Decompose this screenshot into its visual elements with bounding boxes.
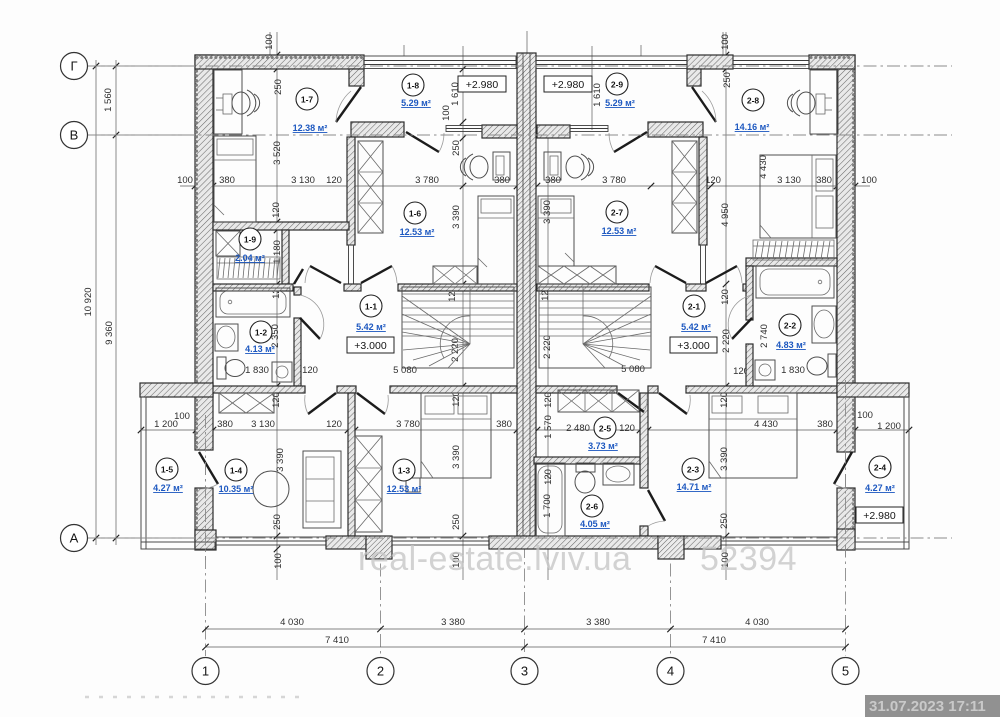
svg-text:5 080: 5 080	[621, 364, 645, 375]
svg-text:1-9: 1-9	[244, 235, 257, 245]
svg-text:3 520: 3 520	[272, 141, 283, 165]
svg-text:3 780: 3 780	[415, 175, 439, 186]
svg-text:2-2: 2-2	[784, 321, 797, 331]
svg-text:12.53 м²: 12.53 м²	[400, 227, 435, 237]
svg-text:7 410: 7 410	[702, 635, 726, 646]
svg-text:3 390: 3 390	[451, 445, 462, 469]
svg-text:250: 250	[451, 514, 462, 530]
svg-text:100: 100	[264, 34, 275, 50]
svg-text:1-5: 1-5	[161, 465, 174, 475]
svg-text:120: 120	[326, 175, 342, 186]
svg-text:5.29 м²: 5.29 м²	[605, 98, 635, 108]
svg-text:2-1: 2-1	[688, 302, 701, 312]
svg-text:В: В	[70, 128, 79, 143]
svg-text:+2.980: +2.980	[552, 79, 585, 91]
svg-text:3 390: 3 390	[719, 447, 730, 471]
svg-text:2-4: 2-4	[874, 463, 887, 473]
svg-text:380: 380	[219, 175, 235, 186]
svg-text:3 780: 3 780	[602, 175, 626, 186]
svg-text:1-6: 1-6	[409, 209, 422, 219]
svg-text:1 560: 1 560	[103, 88, 114, 112]
svg-text:12.53 м²: 12.53 м²	[602, 226, 637, 236]
svg-text:1 610: 1 610	[592, 83, 603, 107]
svg-text:9 360: 9 360	[104, 321, 115, 345]
svg-text:380: 380	[816, 175, 832, 186]
svg-text:5: 5	[842, 664, 849, 679]
svg-text:380: 380	[817, 419, 833, 430]
svg-text:5 080: 5 080	[393, 365, 417, 376]
svg-text:14.16 м²: 14.16 м²	[735, 122, 770, 132]
svg-text:3 380: 3 380	[441, 617, 465, 628]
svg-text:4 430: 4 430	[754, 419, 778, 430]
svg-text:4.13 м²: 4.13 м²	[245, 344, 275, 354]
svg-text:2 220: 2 220	[542, 335, 553, 359]
svg-text:120: 120	[720, 289, 731, 305]
svg-text:120: 120	[719, 392, 730, 408]
svg-text:14.71 м²: 14.71 м²	[677, 482, 712, 492]
svg-text:100: 100	[177, 175, 193, 186]
svg-text:3 130: 3 130	[291, 175, 315, 186]
svg-text:5.29 м²: 5.29 м²	[401, 98, 431, 108]
svg-text:1 200: 1 200	[877, 421, 901, 432]
svg-text:1-8: 1-8	[407, 81, 420, 91]
svg-text:2: 2	[377, 664, 384, 679]
svg-text:real-estate.lviv.ua: real-estate.lviv.ua	[358, 540, 631, 578]
svg-text:250: 250	[273, 79, 284, 95]
svg-text:120: 120	[543, 469, 554, 485]
svg-text:2 740: 2 740	[759, 324, 770, 348]
svg-text:А: А	[70, 531, 79, 546]
svg-text:10 920: 10 920	[83, 287, 94, 316]
svg-text:1 700: 1 700	[542, 494, 553, 518]
svg-text:2-7: 2-7	[611, 208, 624, 218]
svg-text:5.42 м²: 5.42 м²	[681, 322, 711, 332]
svg-text:52394: 52394	[700, 540, 797, 578]
svg-text:100: 100	[441, 105, 452, 121]
svg-text:1 180: 1 180	[272, 240, 283, 264]
svg-text:250: 250	[451, 140, 462, 156]
svg-text:250: 250	[722, 72, 733, 88]
svg-text:120: 120	[302, 365, 318, 376]
svg-text:1 570: 1 570	[543, 415, 554, 439]
svg-text:1-7: 1-7	[301, 95, 314, 105]
svg-text:5.42 м²: 5.42 м²	[356, 322, 386, 332]
svg-text:2 220: 2 220	[721, 329, 732, 353]
svg-text:1-1: 1-1	[365, 302, 378, 312]
svg-text:+3.000: +3.000	[677, 340, 710, 352]
svg-text:3 780: 3 780	[396, 419, 420, 430]
svg-text:380: 380	[217, 419, 233, 430]
svg-text:1 830: 1 830	[781, 365, 805, 376]
svg-text:380: 380	[496, 419, 512, 430]
svg-text:10.35 м²: 10.35 м²	[219, 484, 254, 494]
svg-text:4: 4	[667, 664, 674, 679]
svg-text:4.27 м²: 4.27 м²	[865, 483, 895, 493]
svg-text:7 410: 7 410	[325, 635, 349, 646]
svg-text:4 950: 4 950	[720, 203, 731, 227]
svg-text:120: 120	[326, 419, 342, 430]
svg-text:3.73 м²: 3.73 м²	[588, 441, 618, 451]
svg-text:3 390: 3 390	[542, 200, 553, 224]
svg-text:2-3: 2-3	[687, 465, 700, 475]
svg-text:250: 250	[272, 514, 283, 530]
svg-text:+2.980: +2.980	[466, 79, 499, 91]
svg-text:250: 250	[719, 513, 730, 529]
svg-text:2 480: 2 480	[566, 423, 590, 434]
svg-text:2.04 м²: 2.04 м²	[235, 253, 265, 263]
svg-text:+3.000: +3.000	[354, 340, 387, 352]
svg-text:100: 100	[857, 410, 873, 421]
svg-text:3: 3	[521, 664, 528, 679]
svg-text:1-2: 1-2	[255, 328, 268, 338]
svg-text:4.83 м²: 4.83 м²	[776, 340, 806, 350]
svg-text:+2.980: +2.980	[863, 510, 896, 522]
svg-text:100: 100	[720, 34, 731, 50]
svg-text:3 130: 3 130	[251, 419, 275, 430]
svg-text:4 030: 4 030	[280, 617, 304, 628]
svg-text:3 380: 3 380	[586, 617, 610, 628]
svg-text:2-8: 2-8	[747, 96, 760, 106]
svg-text:1 830: 1 830	[245, 365, 269, 376]
svg-text:120: 120	[271, 202, 282, 218]
svg-text:120: 120	[543, 392, 554, 408]
svg-text:3 390: 3 390	[451, 205, 462, 229]
svg-text:1-4: 1-4	[230, 466, 243, 476]
svg-text:100: 100	[861, 175, 877, 186]
svg-text:1: 1	[202, 664, 209, 679]
svg-text:3 130: 3 130	[777, 175, 801, 186]
svg-text:31.07.2023 17:11: 31.07.2023 17:11	[869, 698, 986, 715]
svg-text:12.38 м²: 12.38 м²	[293, 123, 328, 133]
svg-text:4.05 м²: 4.05 м²	[580, 519, 610, 529]
svg-text:Г: Г	[70, 59, 77, 74]
svg-text:120: 120	[619, 423, 635, 434]
svg-text:100: 100	[273, 553, 284, 569]
svg-text:4.27 м²: 4.27 м²	[153, 483, 183, 493]
svg-text:2-6: 2-6	[586, 502, 599, 512]
svg-text:2-5: 2-5	[599, 424, 612, 434]
svg-text:3 390: 3 390	[275, 448, 286, 472]
svg-text:2-9: 2-9	[611, 80, 624, 90]
svg-text:1-3: 1-3	[398, 466, 411, 476]
svg-text:100: 100	[174, 411, 190, 422]
svg-text:4 030: 4 030	[745, 617, 769, 628]
svg-text:12.53 м²: 12.53 м²	[387, 484, 422, 494]
